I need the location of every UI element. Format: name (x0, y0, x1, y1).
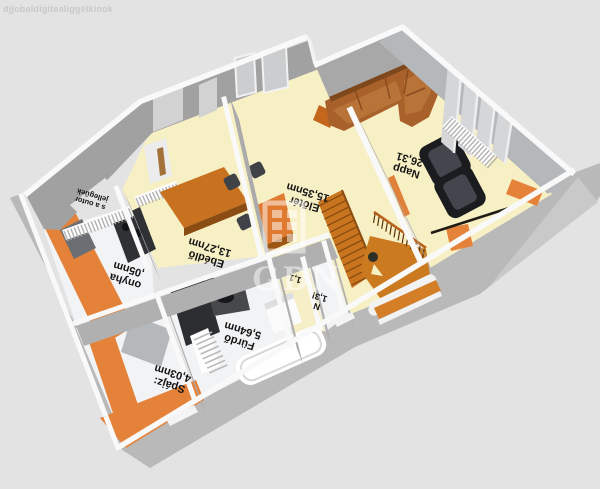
svg-text:GDN: GDN (252, 258, 341, 298)
svg-text:djjobaldigitealiggelkinok: djjobaldigitealiggelkinok (3, 4, 114, 14)
